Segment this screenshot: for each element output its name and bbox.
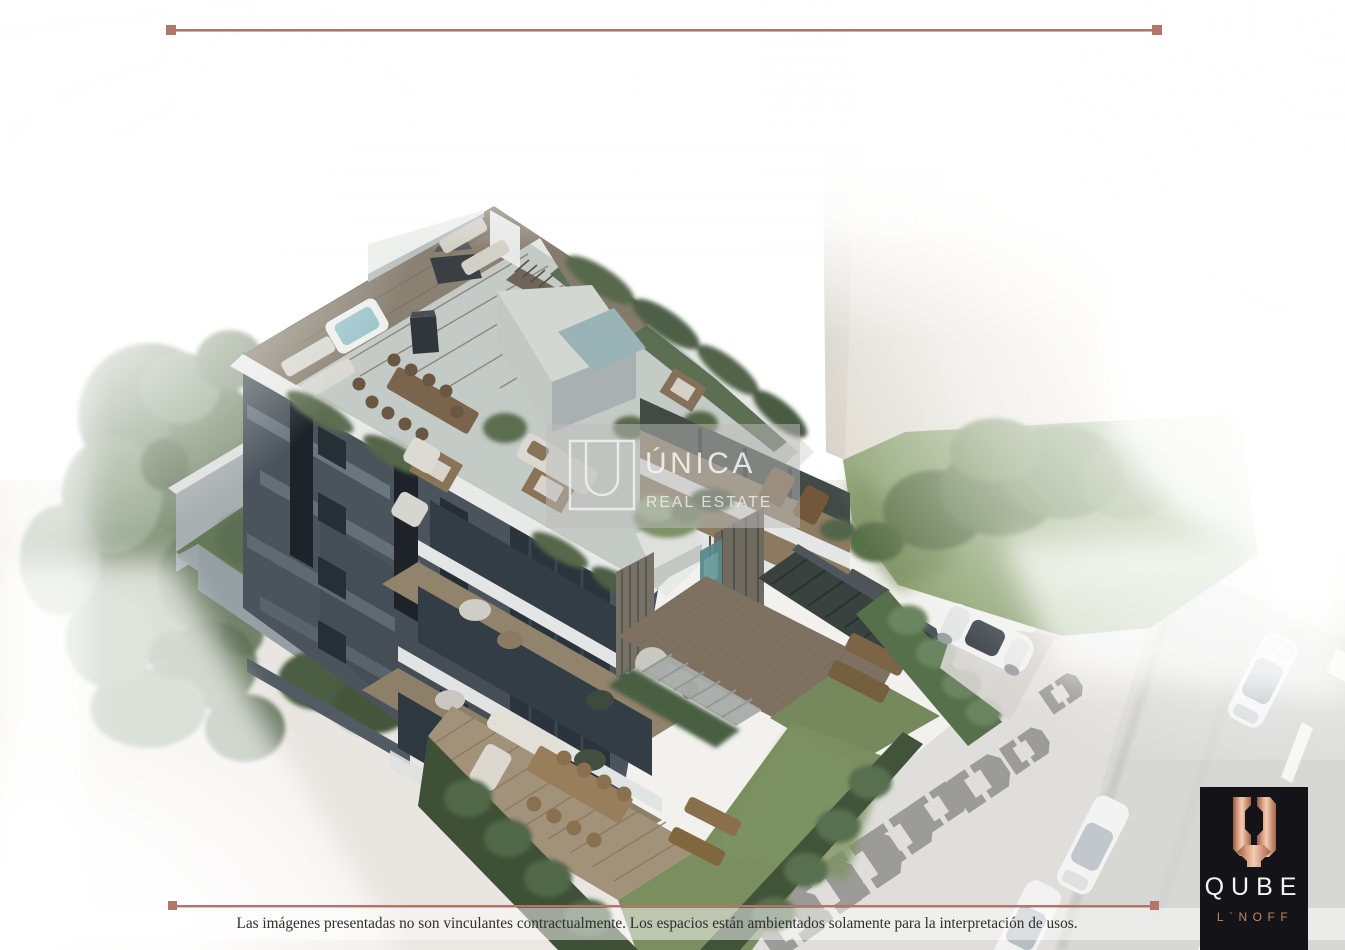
svg-text:REAL ESTATE: REAL ESTATE: [646, 494, 772, 511]
svg-text:ÚNICA: ÚNICA: [645, 447, 756, 480]
svg-text:L`NOFF: L`NOFF: [1217, 910, 1293, 924]
svg-text:QUBE: QUBE: [1205, 873, 1304, 901]
svg-text:Las imágenes presentadas no so: Las imágenes presentadas no son vinculan…: [236, 915, 1077, 932]
